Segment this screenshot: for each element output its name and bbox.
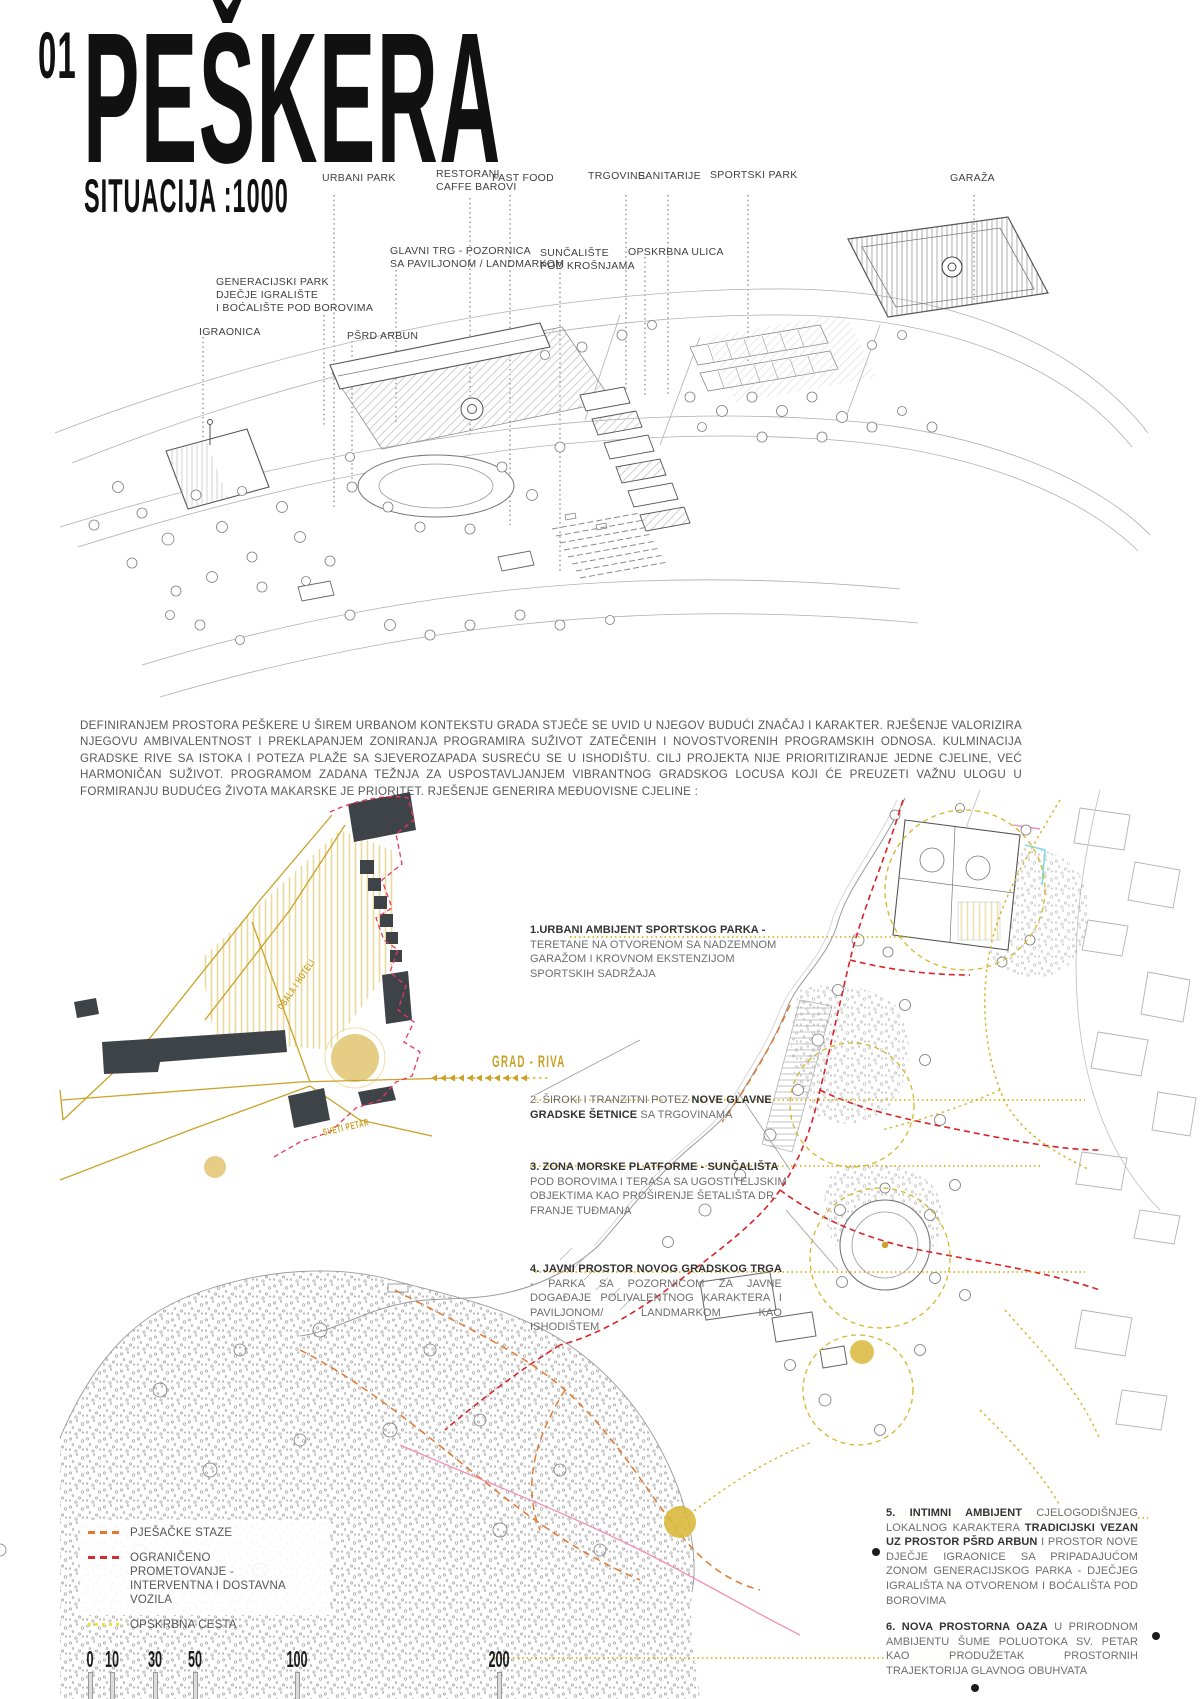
axon-label-garaza: GARAŽA bbox=[950, 172, 995, 185]
orange-dashed-line-swatch bbox=[88, 1531, 122, 1534]
axon-label-suncaliste: SUNČALIŠTE POD KROŠNJAMA bbox=[540, 247, 635, 273]
axon-label-opskrbna-ulica: OPSKRBNA ULICA bbox=[628, 246, 724, 259]
scale-tick-mark bbox=[110, 1672, 115, 1699]
presentation-board: 01 PEŠKERA SITUACIJA :1000 bbox=[0, 0, 1200, 1699]
axon-label-trgovine: TRGOVINE bbox=[588, 170, 645, 183]
page-title: PEŠKERA bbox=[83, 6, 502, 192]
axon-label-glavni-trg: GLAVNI TRG - POZORNICA SA PAVILJONOM / L… bbox=[390, 245, 564, 271]
scale-tick-0: 0 bbox=[86, 1646, 93, 1673]
overview-label-grad-riva: GRAD - RIVA bbox=[492, 1053, 565, 1070]
annotation-6: 6. NOVA PROSTORNA OAZA U PRIRODNOM AMBIJ… bbox=[886, 1620, 1138, 1678]
scale-tick-200: 200 bbox=[488, 1646, 509, 1673]
board-number: 01 bbox=[38, 22, 77, 88]
direction-arrows bbox=[431, 1075, 527, 1082]
scale-tick-mark bbox=[295, 1672, 300, 1699]
annotation-1: 1.URBANI AMBIJENT SPORTSKOG PARKA - TERE… bbox=[530, 923, 792, 981]
annotation-5: 5. INTIMNI AMBIJENT CJELOGODIŠNJEG LOKAL… bbox=[886, 1506, 1138, 1608]
axon-label-sportski-park: SPORTSKI PARK bbox=[710, 169, 798, 182]
axon-label-urbani-park: URBANI PARK bbox=[322, 172, 396, 185]
annotation-3: 3. ZONA MORSKE PLATFORME - SUNČALIŠTA PO… bbox=[530, 1160, 790, 1218]
gold-nodes bbox=[664, 1340, 874, 1538]
axon-label-fast-food: FAST FOOD bbox=[492, 172, 554, 185]
axon-label-restorani: RESTORANI CAFFE BAROVI bbox=[436, 168, 498, 194]
scale-tick-mark bbox=[193, 1672, 198, 1699]
scale-tick-10: 10 bbox=[105, 1646, 119, 1673]
axon-label-generacijski-park: GENERACIJSKI PARK DJEČJE IGRALIŠTE I BOĆ… bbox=[216, 276, 373, 315]
red-dashed-line-swatch bbox=[88, 1556, 122, 1559]
legend-item-pjesacke-staze: PJEŠAČKE STAZE bbox=[88, 1526, 318, 1540]
axon-label-psrd-arbun: PŠRD ARBUN bbox=[347, 330, 418, 343]
scale-tick-30: 30 bbox=[148, 1646, 162, 1673]
intro-paragraph: DEFINIRANJEM PROSTORA PEŠKERE U ŠIREM UR… bbox=[80, 718, 1022, 800]
axon-label-igraonica: IGRAONICA bbox=[199, 326, 261, 339]
scale-tick-mark bbox=[497, 1672, 502, 1699]
legend-item-opskrbna-cesta: OPSKRBNA CESTA bbox=[88, 1618, 318, 1632]
yellow-dotted-line-swatch bbox=[88, 1623, 122, 1626]
annotation-2: 2. ŠIROKI I TRANZITNI POTEZ NOVE GLAVNE … bbox=[530, 1093, 788, 1122]
legend-item-ograniceno-prometovanje: OGRANIČENO PROMETOVANJE - INTERVENTNA I … bbox=[88, 1551, 318, 1607]
scale-tick-100: 100 bbox=[286, 1646, 307, 1673]
annotation-4: 4. JAVNI PROSTOR NOVOG GRADSKOG TRGA - P… bbox=[530, 1262, 782, 1335]
legend: PJEŠAČKE STAZE OGRANIČENO PROMETOVANJE -… bbox=[88, 1526, 318, 1643]
axon-label-sanitarije: SANITARIJE bbox=[638, 170, 701, 183]
scale-tick-50: 50 bbox=[188, 1646, 202, 1673]
axon-buildings bbox=[166, 217, 1048, 601]
scale-tick-mark bbox=[153, 1672, 158, 1699]
scale-tick-mark bbox=[88, 1672, 93, 1699]
